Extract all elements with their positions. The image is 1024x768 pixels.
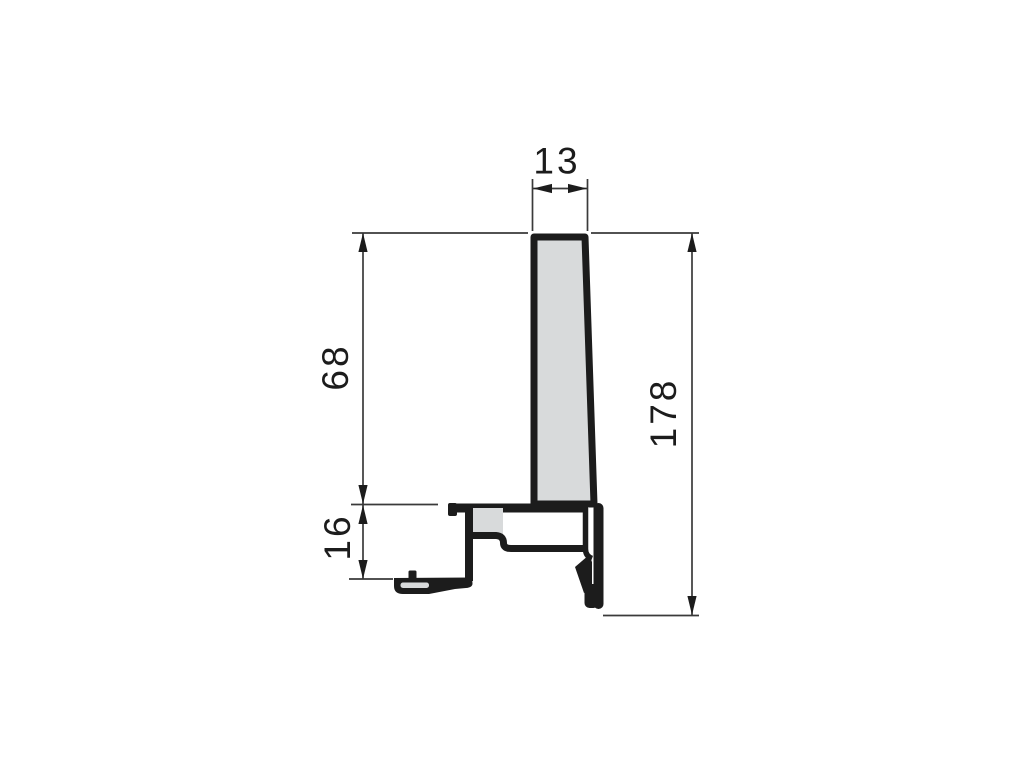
profile-blade — [534, 237, 594, 504]
profile-leg-lower — [585, 584, 599, 608]
arrowhead-up-icon — [687, 233, 696, 252]
profile-leg-inner-wall — [586, 508, 593, 559]
dimension-top-width: 13 — [533, 141, 588, 232]
dimension-total-height: 178 — [591, 233, 699, 616]
dimension-label-upper-height: 68 — [315, 343, 356, 390]
dimension-upper-height: 68 — [315, 233, 528, 505]
arrowhead-left-icon — [533, 184, 552, 193]
profile-cross-section — [394, 237, 599, 608]
arrowhead-right-icon — [568, 184, 587, 193]
profile-dimension-drawing: 13 68 16 178 — [0, 0, 1024, 768]
profile-step-underside — [466, 536, 584, 549]
dimension-label-total-height: 178 — [643, 378, 684, 449]
arrowhead-down-icon — [687, 596, 696, 615]
dimension-lower-height: 16 — [317, 505, 393, 579]
profile-foot-slot — [401, 583, 430, 589]
profile-step-pocket — [473, 508, 503, 536]
profile-ledge-end — [448, 503, 457, 516]
arrowhead-down-icon — [358, 560, 367, 579]
dimension-label-top-width: 13 — [533, 141, 580, 182]
dimension-label-lower-height: 16 — [317, 513, 358, 560]
arrowhead-up-icon — [358, 505, 367, 524]
arrowhead-up-icon — [358, 233, 367, 252]
arrowhead-down-icon — [358, 485, 367, 504]
technical-drawing-canvas: 13 68 16 178 — [0, 0, 1024, 768]
profile-foot-nub — [409, 571, 417, 580]
